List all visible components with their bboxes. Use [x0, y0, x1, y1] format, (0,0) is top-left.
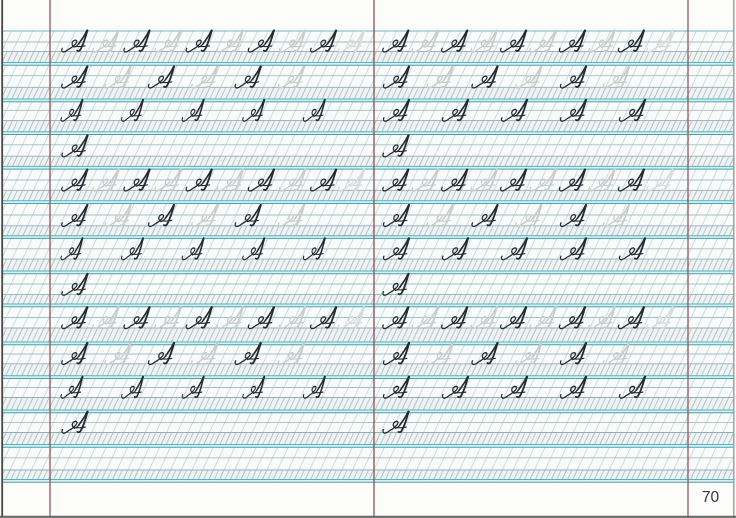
svg-text:70: 70 [702, 489, 720, 506]
